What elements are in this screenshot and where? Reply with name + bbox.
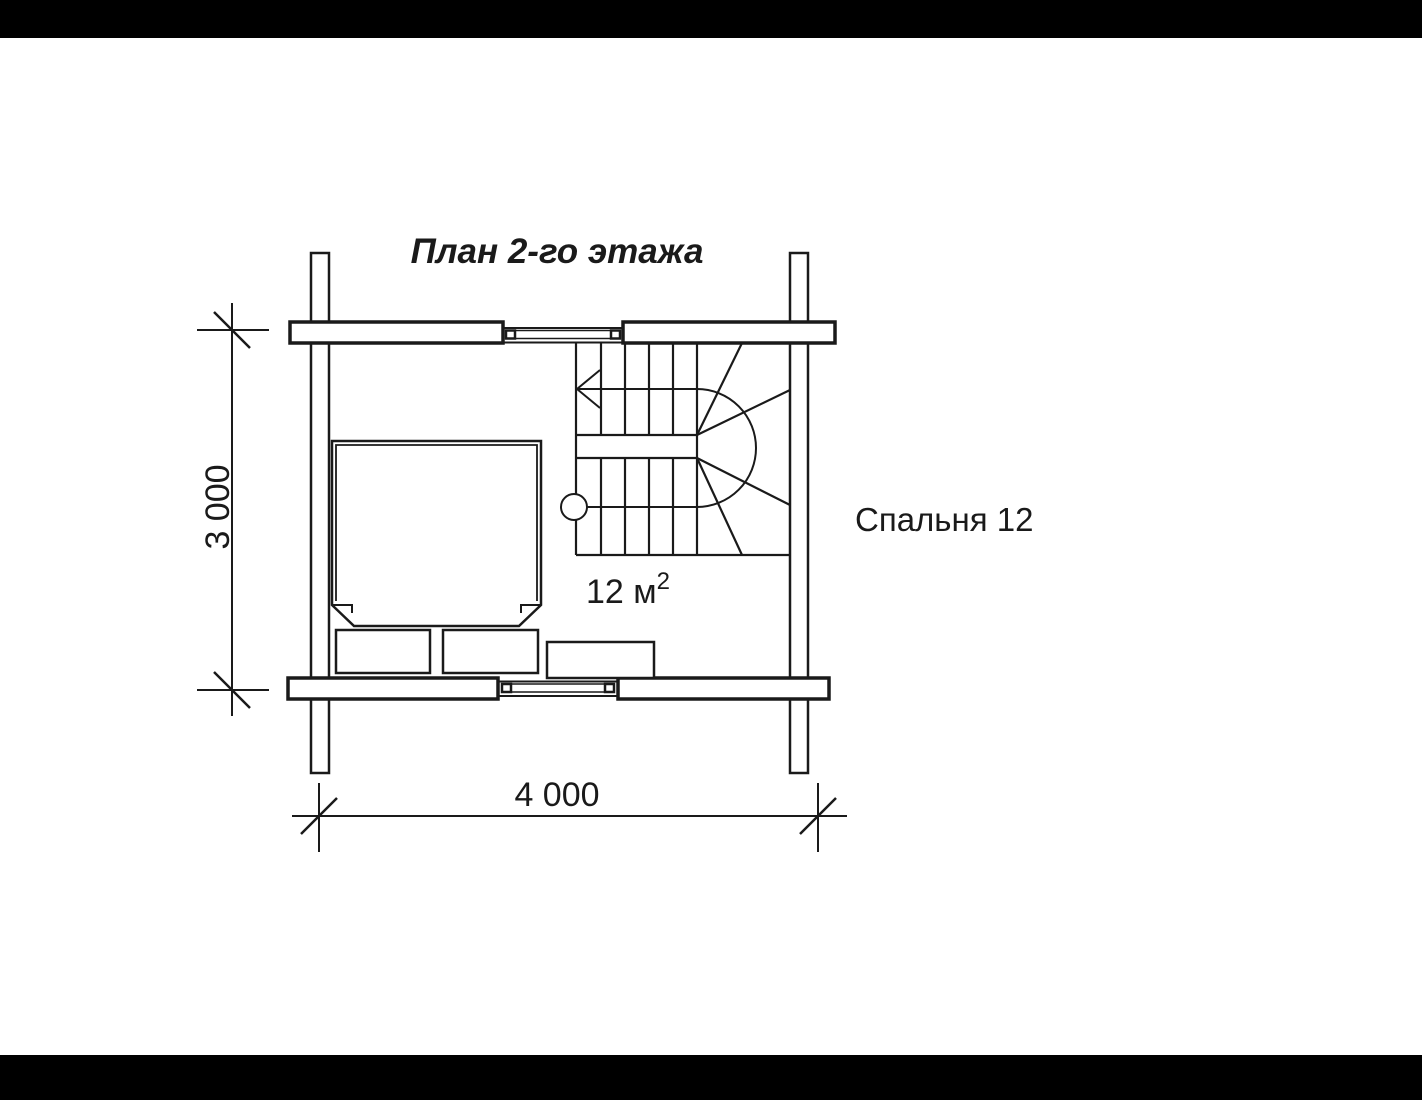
top-wall-left [290,322,503,343]
room-name-label: Спальня 12 [855,501,1033,538]
window-bottom-sash-block-left [502,684,511,692]
walk-line-start-circle [561,494,587,520]
window-top-sash-block-left [506,331,515,339]
height-dimension-label: 3 000 [199,464,237,549]
bottom-wall-right [618,678,829,699]
room-area-superscript: 2 [657,568,670,595]
window-bottom-sash [502,684,614,692]
plan-title: План 2-го этажа [411,232,704,271]
window-top-sash-block-right [611,331,620,339]
pillow-right [443,630,538,673]
stair-bottom-step [547,642,654,678]
window-top-sash [506,331,620,339]
bottom-wall-left [288,678,498,699]
pillow-left [336,630,430,673]
bed-duvet [332,441,541,626]
width-dimension-label: 4 000 [514,776,599,814]
window-bottom-sash-block-right [605,684,614,692]
floor-plan-page: План 2-го этажа Спальня 12 12 м2 4 000 3… [0,0,1422,1100]
top-wall-right [623,322,835,343]
room-area-value: 12 м [586,573,657,611]
